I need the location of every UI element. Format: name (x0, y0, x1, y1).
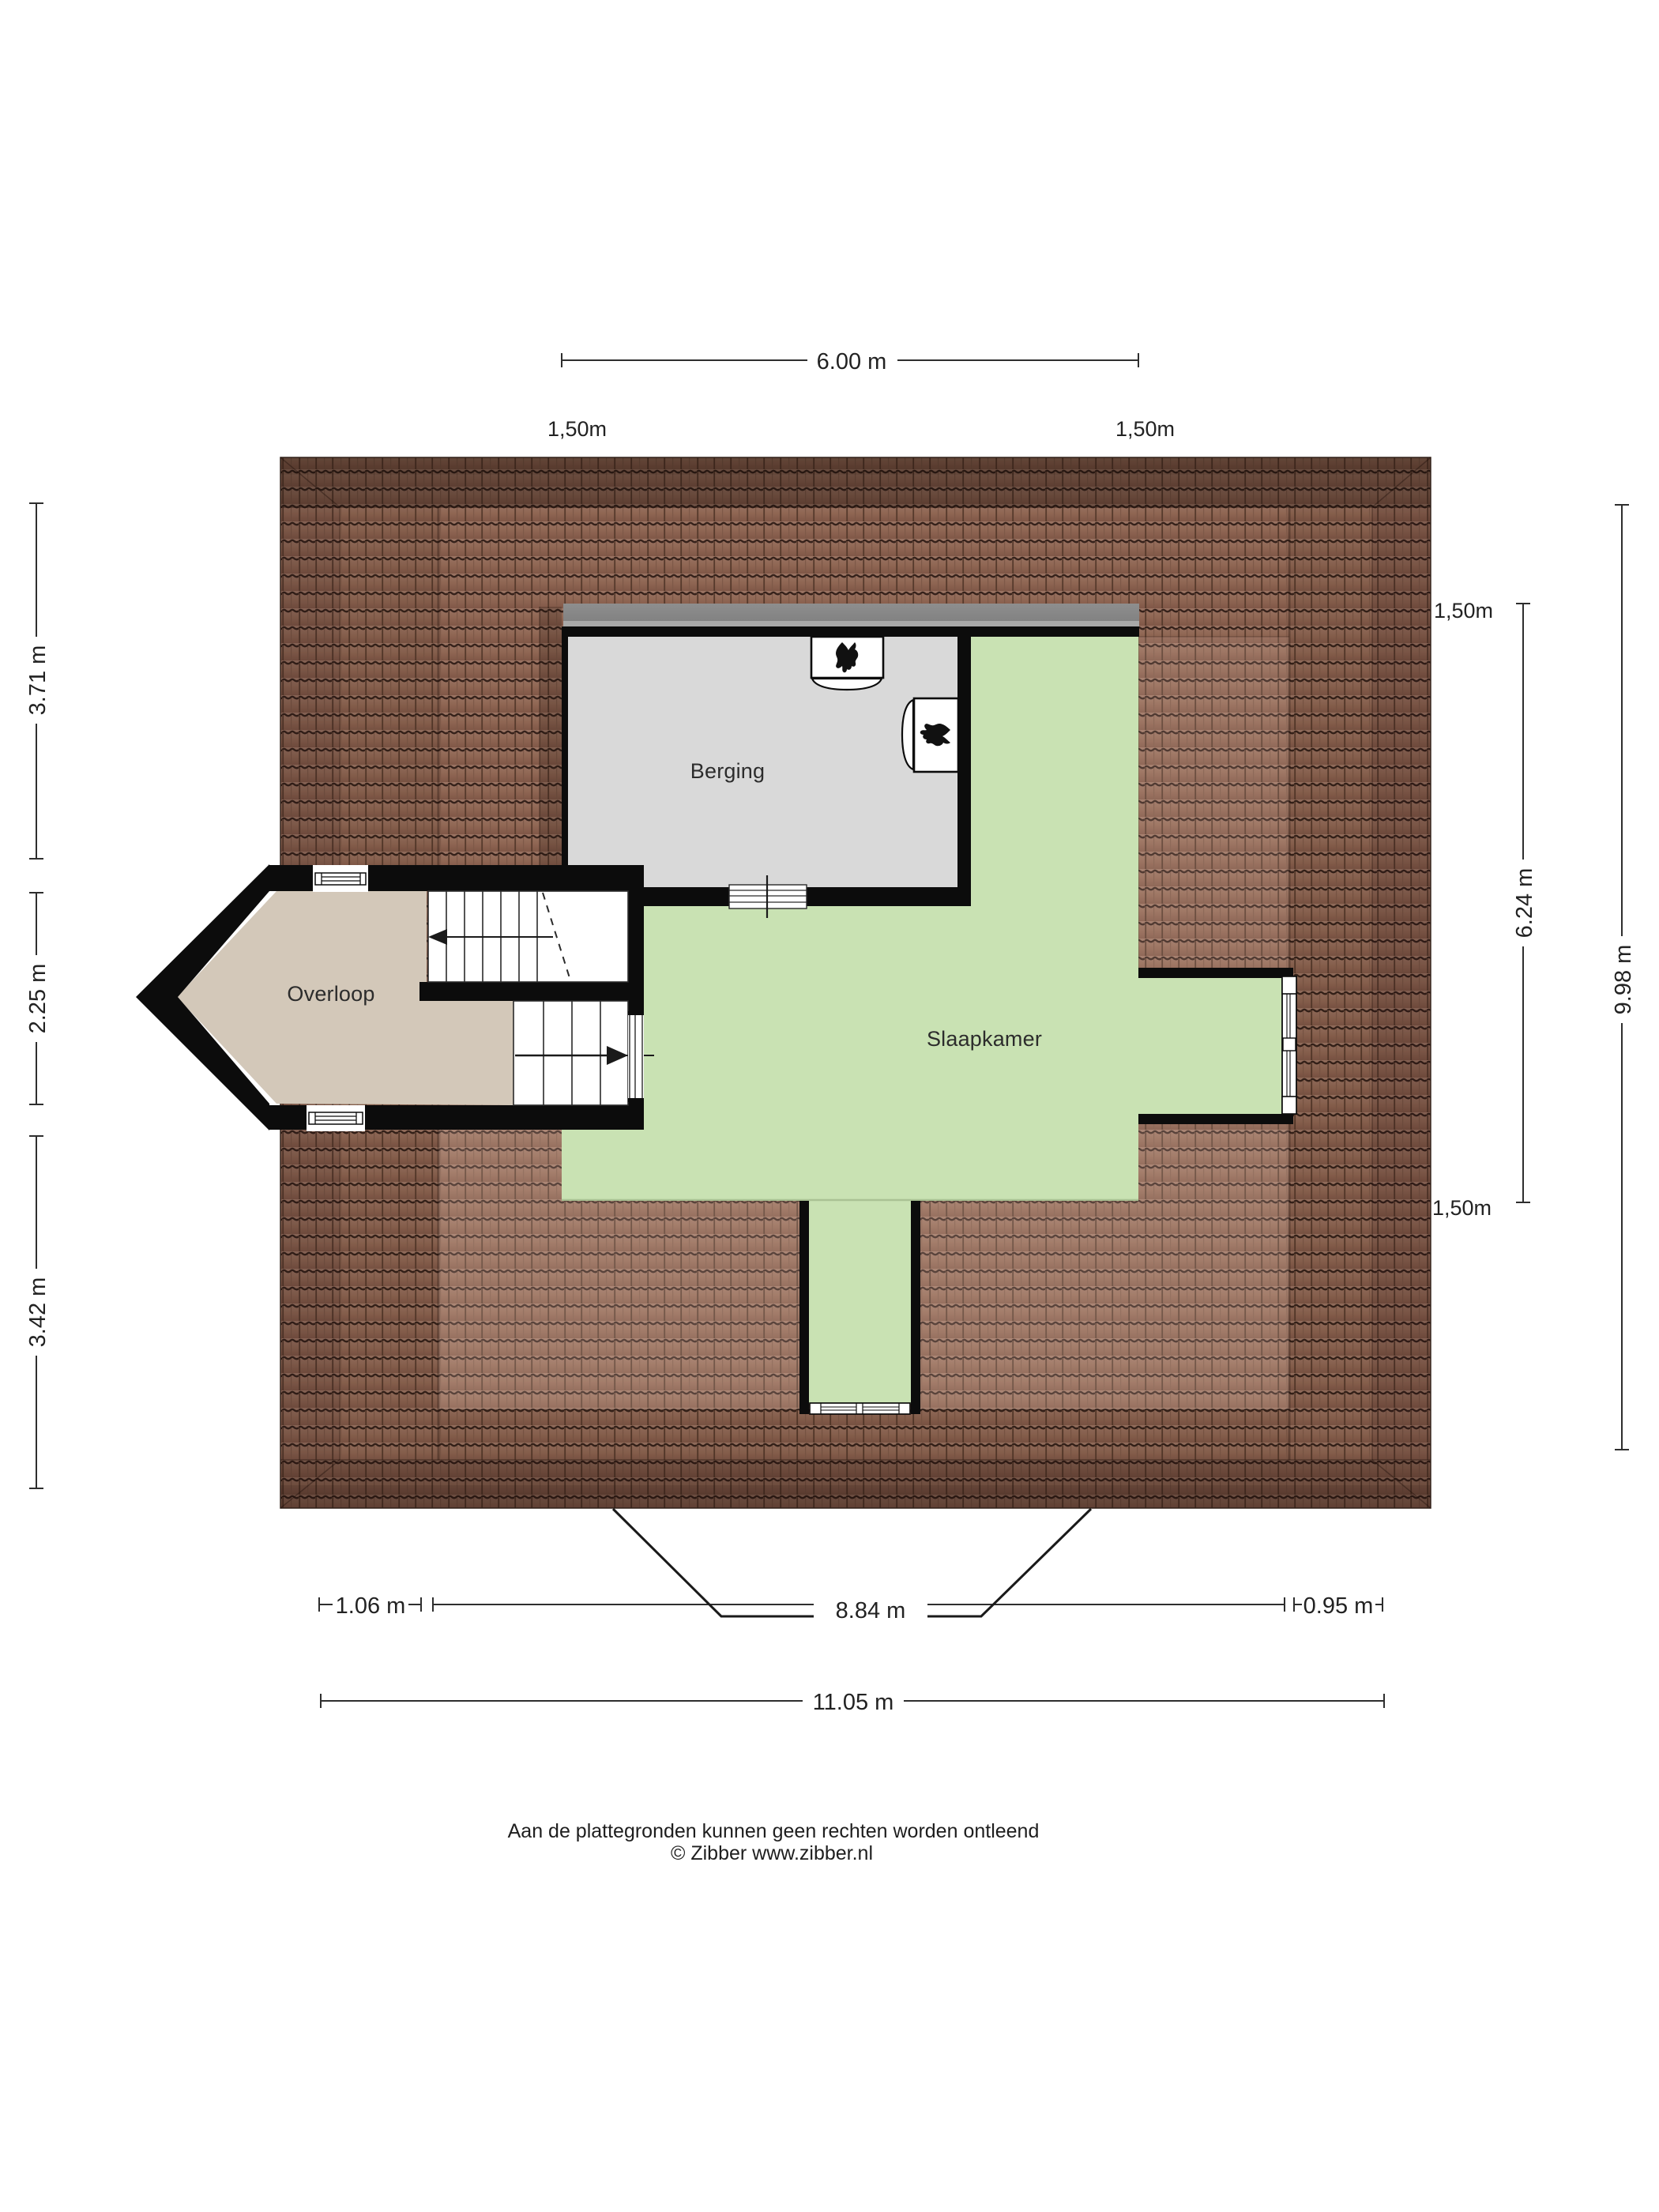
svg-text:Slaapkamer: Slaapkamer (927, 1027, 1042, 1051)
svg-text:1,50m: 1,50m (547, 417, 607, 441)
svg-text:9.98 m: 9.98 m (1611, 945, 1636, 1015)
svg-text:0.95 m: 0.95 m (1303, 1593, 1374, 1619)
svg-text:Aan de plattegronden kunnen ge: Aan de plattegronden kunnen geen rechten… (508, 1820, 1040, 1842)
svg-text:2.25 m: 2.25 m (25, 964, 51, 1034)
svg-text:3.42 m: 3.42 m (25, 1277, 51, 1348)
svg-text:8.84 m: 8.84 m (836, 1598, 906, 1623)
svg-text:1,50m: 1,50m (1115, 417, 1175, 441)
svg-text:1.06 m: 1.06 m (336, 1593, 406, 1619)
svg-text:Overloop: Overloop (287, 982, 374, 1006)
svg-text:1,50m: 1,50m (1434, 599, 1493, 623)
svg-text:3.71 m: 3.71 m (25, 645, 51, 716)
svg-text:6.24 m: 6.24 m (1512, 868, 1537, 939)
svg-text:6.00 m: 6.00 m (817, 349, 887, 374)
svg-text:© Zibber www.zibber.nl: © Zibber www.zibber.nl (671, 1842, 873, 1864)
svg-text:Berging: Berging (690, 759, 765, 783)
svg-text:1,50m: 1,50m (1432, 1196, 1492, 1220)
svg-text:11.05 m: 11.05 m (813, 1690, 894, 1715)
